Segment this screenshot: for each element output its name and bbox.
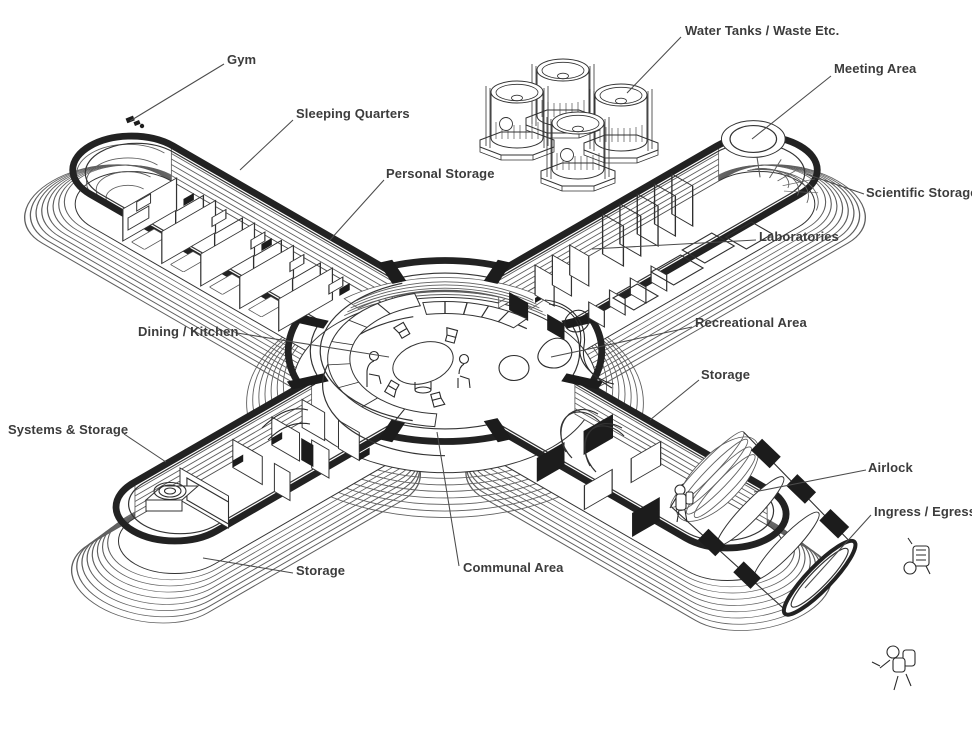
- leader-gym: [130, 64, 224, 121]
- astronaut-icon: [904, 538, 930, 574]
- water-tanks-group: [480, 59, 658, 191]
- label-meeting-area: Meeting Area: [834, 62, 916, 76]
- label-laboratories: Laboratories: [759, 230, 839, 244]
- leader-systems-storage: [124, 434, 166, 462]
- leader-meeting-area: [752, 76, 831, 139]
- label-airlock: Airlock: [868, 461, 913, 475]
- label-gym: Gym: [227, 53, 256, 67]
- label-dining-kitchen: Dining / Kitchen: [138, 325, 239, 339]
- water-tank: [541, 112, 615, 191]
- habitat-cutaway-diagram: Gym Sleeping Quarters Personal Storage W…: [0, 0, 972, 729]
- astronaut-icon: [872, 646, 915, 690]
- label-ingress-egress: Ingress / Egress: [874, 505, 972, 519]
- label-recreational-area: Recreational Area: [695, 316, 807, 330]
- label-scientific-storage: Scientific Storage: [866, 186, 972, 200]
- label-storage-bottom: Storage: [296, 564, 345, 578]
- label-sleeping-quarters: Sleeping Quarters: [296, 107, 410, 121]
- label-storage-right: Storage: [701, 368, 750, 382]
- label-water-tanks: Water Tanks / Waste Etc.: [685, 24, 839, 38]
- water-tank: [480, 81, 554, 160]
- label-communal-area: Communal Area: [463, 561, 564, 575]
- leader-personal-storage: [330, 180, 384, 240]
- leader-water-tanks: [627, 37, 681, 93]
- label-systems-storage: Systems & Storage: [8, 423, 128, 437]
- label-personal-storage: Personal Storage: [386, 167, 495, 181]
- leader-sleeping-quarters: [240, 120, 293, 170]
- habitat-cutaway-illustration: [0, 0, 972, 729]
- leader-storage-right: [650, 380, 699, 420]
- meeting-table: [708, 113, 798, 165]
